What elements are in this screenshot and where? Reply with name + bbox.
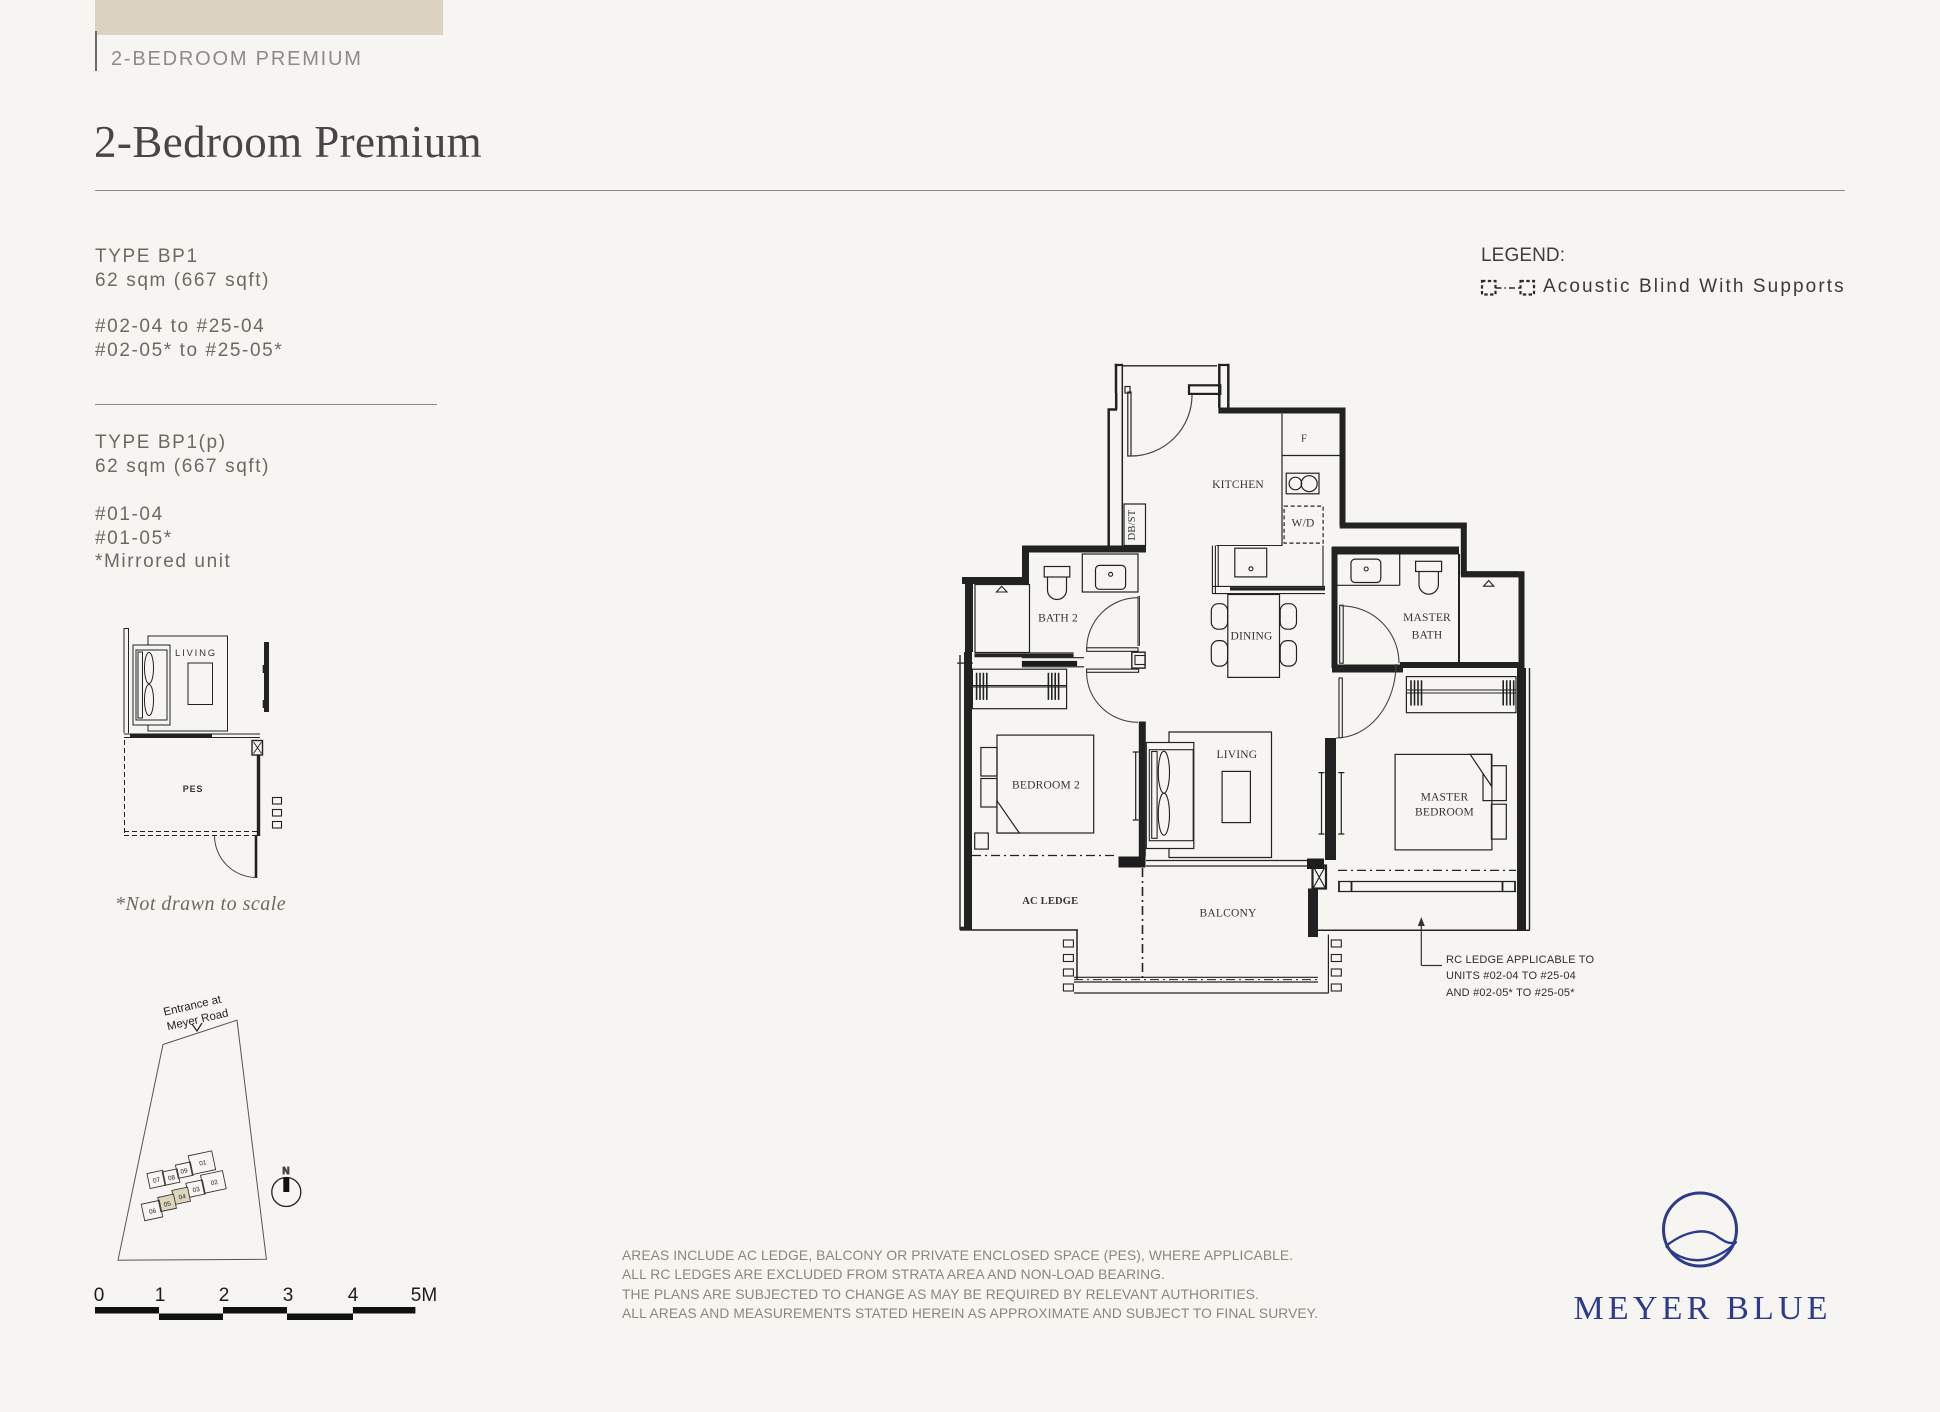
svg-text:5M: 5M xyxy=(411,1285,437,1306)
svg-text:DB/ST: DB/ST xyxy=(1127,509,1138,540)
svg-text:09: 09 xyxy=(180,1167,189,1175)
svg-text:08: 08 xyxy=(167,1174,176,1182)
svg-text:0: 0 xyxy=(94,1285,105,1306)
svg-text:LIVING: LIVING xyxy=(175,648,217,659)
svg-text:AC LEDGE: AC LEDGE xyxy=(1022,896,1078,907)
svg-text:BATH 2: BATH 2 xyxy=(1038,613,1078,625)
svg-text:MASTER: MASTER xyxy=(1403,612,1451,624)
svg-text:1: 1 xyxy=(155,1285,166,1306)
svg-text:MASTER: MASTER xyxy=(1421,792,1469,804)
svg-text:3: 3 xyxy=(283,1285,294,1306)
svg-text:BATH: BATH xyxy=(1412,630,1443,642)
svg-text:BEDROOM: BEDROOM xyxy=(1415,807,1474,819)
svg-text:02: 02 xyxy=(210,1179,219,1187)
svg-text:W/D: W/D xyxy=(1292,518,1315,530)
svg-text:2: 2 xyxy=(219,1285,230,1306)
svg-text:F: F xyxy=(1301,434,1307,445)
svg-text:06: 06 xyxy=(148,1208,157,1216)
svg-text:BEDROOM 2: BEDROOM 2 xyxy=(1012,780,1080,792)
svg-text:01: 01 xyxy=(199,1159,208,1167)
svg-text:03: 03 xyxy=(192,1186,201,1194)
svg-text:LIVING: LIVING xyxy=(1216,749,1257,761)
svg-text:KITCHEN: KITCHEN xyxy=(1212,479,1264,491)
svg-text:PES: PES xyxy=(183,784,203,794)
svg-text:MEYER BLUE: MEYER BLUE xyxy=(1573,1290,1831,1327)
svg-text:BALCONY: BALCONY xyxy=(1200,908,1257,920)
svg-text:N: N xyxy=(282,1166,289,1177)
svg-text:07: 07 xyxy=(152,1176,161,1184)
svg-text:4: 4 xyxy=(348,1285,359,1306)
svg-text:DINING: DINING xyxy=(1230,631,1272,643)
